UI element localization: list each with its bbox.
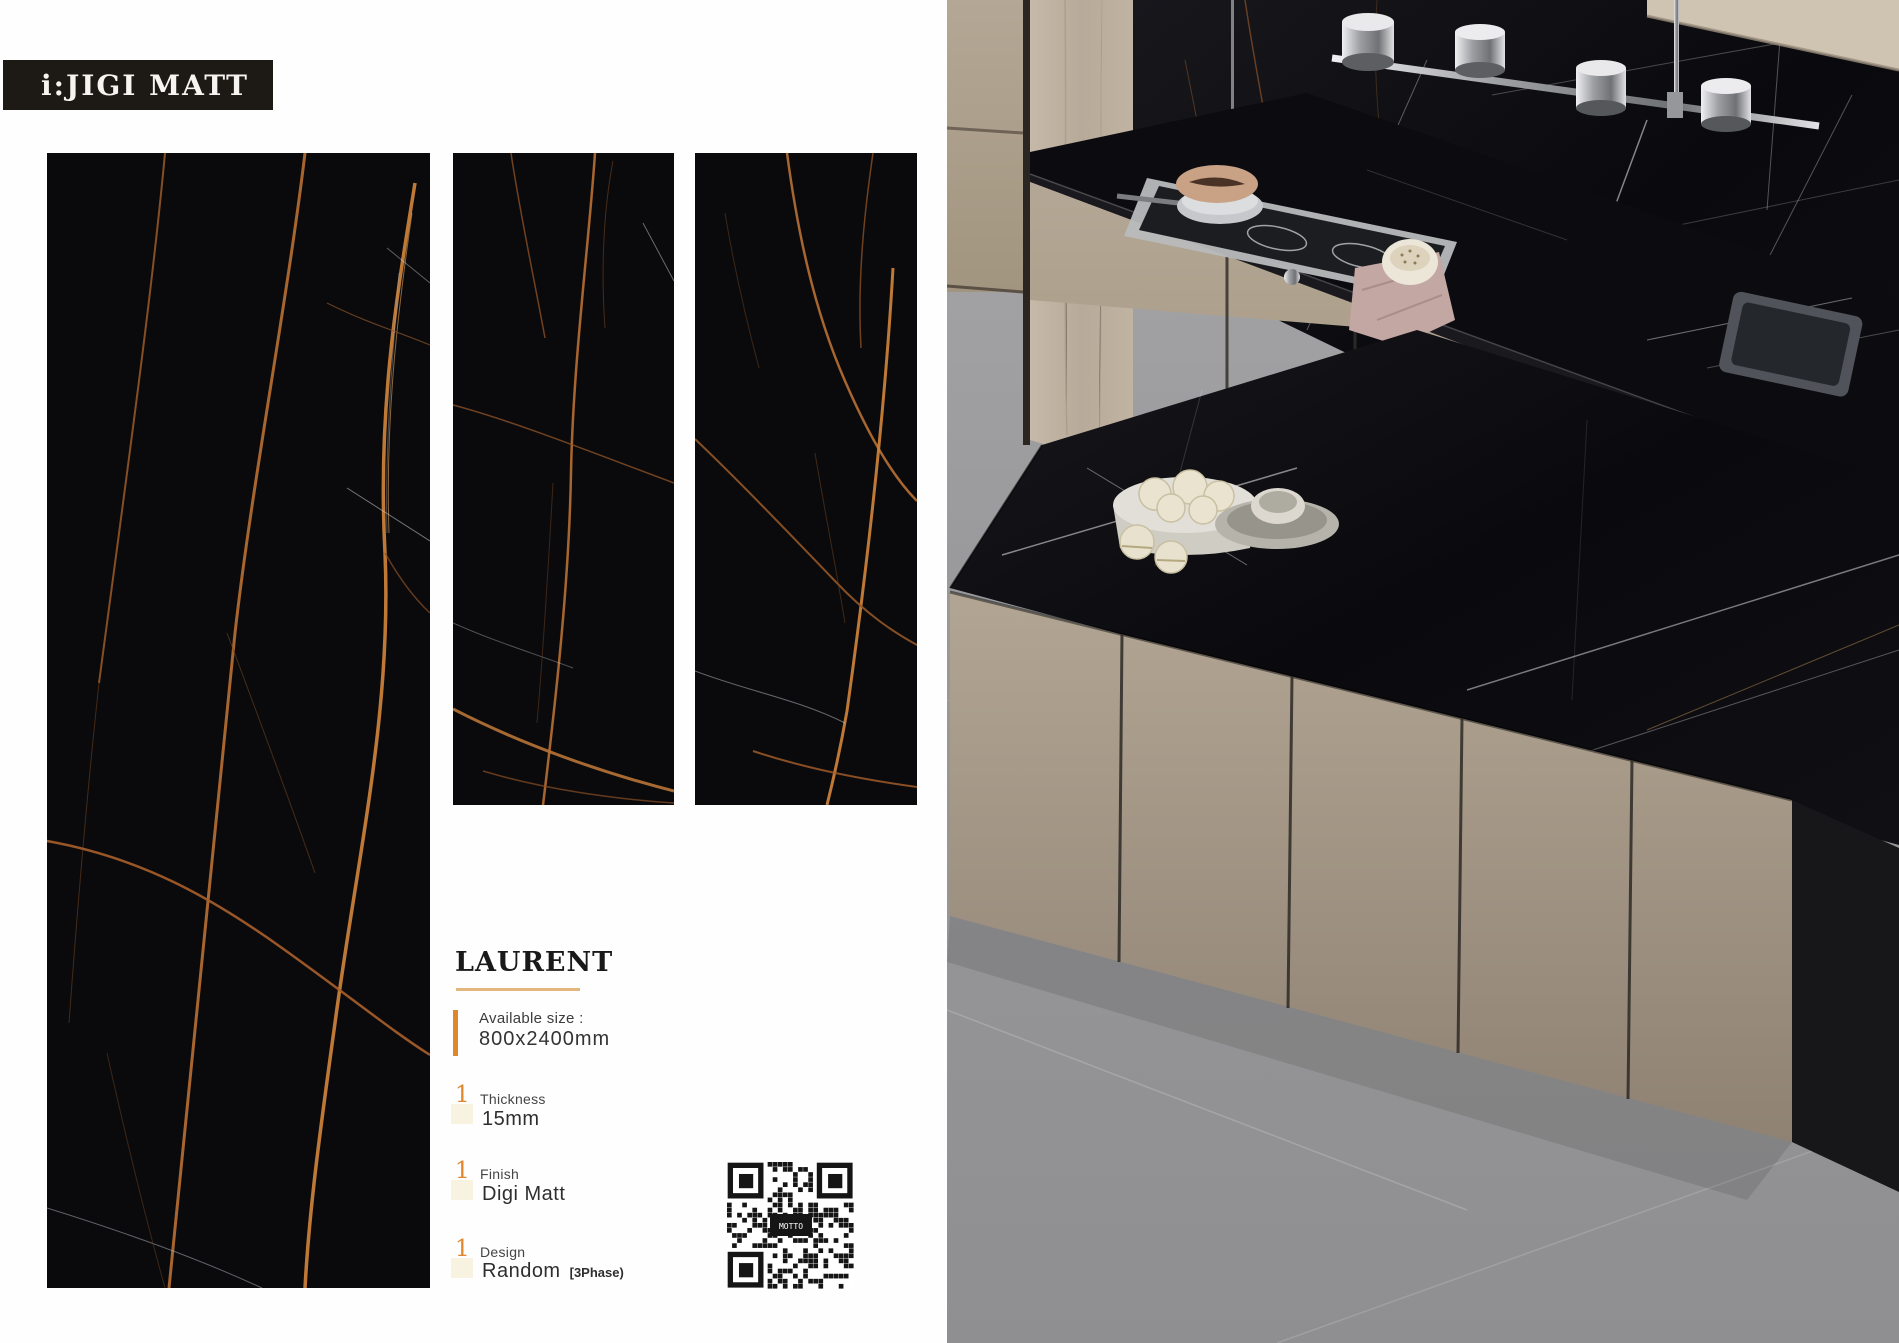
tile-3-veins: [695, 153, 917, 805]
finish-value: Digi Matt: [482, 1183, 565, 1206]
finish-marker: 1: [455, 1160, 475, 1183]
product-name-underline: [456, 988, 580, 991]
catalog-page: i:JIGI MATT: [0, 0, 1899, 1343]
thickness-value: 15mm: [482, 1108, 540, 1131]
tile-sample-3: [695, 153, 917, 805]
tile-sample-2: [453, 153, 674, 805]
finish-label: Finish: [480, 1166, 519, 1182]
pendant-cylinder-2: [1455, 24, 1505, 78]
thickness-marker: 1: [455, 1084, 475, 1107]
pendant-cylinder-4: [1701, 78, 1751, 132]
qr-code: MOTTO: [727, 1162, 854, 1289]
design-value-suffix: [3Phase): [570, 1265, 624, 1280]
design-label: Design: [480, 1244, 525, 1260]
pendant-cylinder-3: [1576, 60, 1626, 116]
series-badge: i:JIGI MATT: [3, 60, 273, 110]
size-value: 800x2400mm: [479, 1028, 610, 1051]
size-label: Available size :: [479, 1010, 584, 1027]
tile-1-veins: [47, 153, 430, 1288]
tile-2-veins: [453, 153, 674, 805]
design-marker: 1: [455, 1238, 475, 1261]
pendant-cylinder-1: [1342, 13, 1394, 71]
tile-sample-1: [47, 153, 430, 1288]
design-value: Random[3Phase): [482, 1260, 624, 1283]
size-accent-bar: [453, 1010, 458, 1056]
series-badge-label: i:JIGI MATT: [41, 69, 249, 102]
svg-text:MOTTO: MOTTO: [779, 1222, 803, 1231]
hob-knob: [1284, 269, 1300, 285]
design-value-main: Random: [482, 1260, 561, 1282]
product-name: LAURENT: [455, 947, 613, 978]
thickness-label: Thickness: [480, 1091, 546, 1107]
island-end-panel: [1792, 800, 1899, 1192]
kitchen-photo: [947, 0, 1899, 1343]
